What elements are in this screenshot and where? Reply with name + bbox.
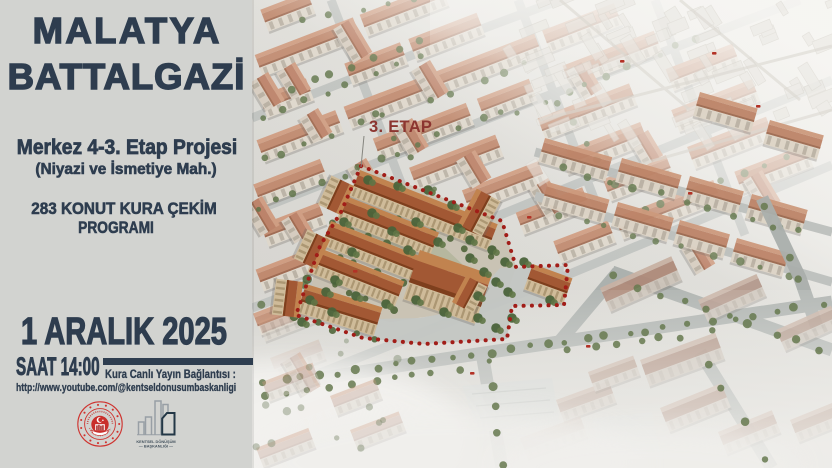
svg-text:3. ETAP: 3. ETAP	[369, 118, 432, 136]
svg-text:— BAŞKANLIĞI —: — BAŞKANLIĞI —	[139, 443, 173, 448]
